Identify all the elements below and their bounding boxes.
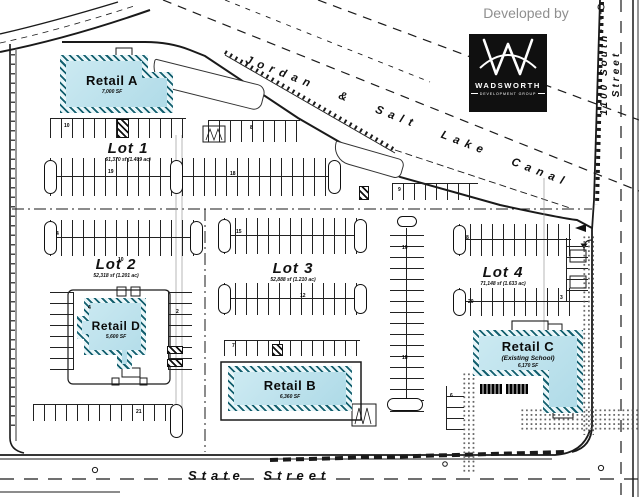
- lot-4-label: Lot 4 71,148 sf (1.633 ac): [443, 264, 563, 287]
- stall-count: 6: [450, 394, 453, 399]
- stall-count: 20: [468, 300, 474, 305]
- parking-row: [392, 183, 478, 200]
- parking-row: [459, 288, 571, 316]
- entrance-arrow-icon: [575, 224, 586, 232]
- landscape-island: [397, 216, 417, 227]
- landscape-island: [387, 398, 423, 411]
- landscape-island: [453, 225, 466, 255]
- retail-c-size: 6,170 SF: [518, 363, 538, 369]
- stall-count: 18: [402, 356, 408, 361]
- stall-count: 9: [398, 188, 401, 193]
- developed-by-text: Developed by: [452, 5, 600, 21]
- stall-count: 8: [250, 126, 253, 131]
- landscape-island: [354, 219, 367, 253]
- stall-count: 19: [108, 170, 114, 175]
- stall-count: 8: [466, 236, 469, 241]
- parking-row: [33, 404, 173, 421]
- lot-1-label: Lot 1 61,370 sf (1.409 ac): [68, 140, 188, 163]
- parking-row: [224, 340, 360, 356]
- stall-count: 2: [176, 310, 179, 315]
- crosswalk-marker: [506, 384, 528, 394]
- landscape-island: [44, 221, 57, 255]
- landscape-island: [170, 160, 183, 194]
- stall-count: 7: [232, 344, 235, 349]
- stall-count: 10: [118, 258, 124, 263]
- lot-3-name: Lot 3: [233, 260, 353, 277]
- stall-count: 10: [402, 246, 408, 251]
- retail-a-size: 7,000 SF: [102, 89, 122, 95]
- crosswalk-marker: [272, 344, 283, 356]
- building-label-retail-b: Retail B 6,360 SF: [230, 370, 350, 407]
- retail-b-size: 6,360 SF: [280, 394, 300, 400]
- lot-2-area: 52,318 sf (1.201 ac): [56, 273, 176, 279]
- parking-row: [50, 220, 196, 256]
- retail-d-size: 5,600 SF: [106, 334, 126, 340]
- lot-2-name: Lot 2: [56, 256, 176, 273]
- lot-3-area: 52,888 sf (1.210 ac): [233, 277, 353, 283]
- parking-row: [50, 158, 334, 196]
- stall-count: 4: [56, 232, 59, 237]
- stall-count: 10: [64, 124, 70, 129]
- wadsworth-logo-name: WADSWORTH: [475, 81, 541, 90]
- crosswalk-marker: [480, 384, 502, 394]
- lot-2-label: Lot 2 52,318 sf (1.201 ac): [56, 256, 176, 279]
- building-label-retail-d: Retail D 5,600 SF: [80, 312, 152, 346]
- stall-count: 15: [236, 230, 242, 235]
- retail-d-name: Retail D: [92, 319, 141, 333]
- parking-row: [224, 283, 360, 315]
- parking-row: [50, 292, 74, 370]
- lot-1-name: Lot 1: [68, 140, 188, 157]
- landscape-island: [170, 404, 183, 438]
- retail-c-note: (Existing School): [501, 355, 554, 362]
- crosswalk-marker: [167, 346, 183, 354]
- building-label-retail-a: Retail A 7,000 SF: [62, 63, 162, 105]
- crosswalk-marker: [117, 119, 129, 138]
- stall-count: 12: [300, 294, 306, 299]
- landscape-island: [218, 219, 231, 253]
- parking-row: [390, 228, 424, 412]
- landscape-island: [44, 160, 57, 194]
- retail-c-name: Retail C: [502, 339, 554, 354]
- east-street-line2: Street: [611, 9, 623, 139]
- lot-1-area: 61,370 sf (1.409 ac): [68, 157, 188, 163]
- east-street-line1: 1100 South: [599, 9, 611, 139]
- retail-b-name: Retail B: [264, 378, 316, 393]
- wadsworth-monogram-icon: [476, 34, 540, 80]
- landscape-stipple: [582, 235, 594, 435]
- site-plan: Retail A 7,000 SF Retail D 5,600 SF Reta…: [0, 0, 639, 497]
- building-label-retail-c: Retail C (Existing School) 6,170 SF: [475, 334, 581, 374]
- landscape-island: [218, 284, 231, 314]
- stall-count: 3: [560, 296, 563, 301]
- east-street-label: 1100 South Street: [599, 9, 625, 139]
- landscape-island: [453, 289, 466, 316]
- parking-row: [224, 218, 360, 254]
- stall-count: 21: [136, 410, 142, 415]
- wadsworth-logo: WADSWORTH DEVELOPMENT GROUP: [469, 34, 547, 112]
- landscape-island: [328, 160, 341, 194]
- parking-row: [459, 224, 571, 256]
- stall-count: 18: [230, 172, 236, 177]
- wadsworth-logo-subtitle: DEVELOPMENT GROUP: [471, 92, 546, 96]
- lot-4-area: 71,148 sf (1.633 ac): [443, 281, 563, 287]
- retail-a-name: Retail A: [86, 73, 138, 88]
- parking-row: [208, 120, 300, 142]
- lot-4-name: Lot 4: [443, 264, 563, 281]
- crosswalk-marker: [359, 186, 369, 200]
- crosswalk-marker: [167, 359, 183, 367]
- landscape-island: [190, 221, 203, 255]
- stall-count: 4: [88, 306, 91, 311]
- state-street-label: State Street: [188, 468, 330, 483]
- landscape-island: [354, 284, 367, 314]
- lot-3-label: Lot 3 52,888 sf (1.210 ac): [233, 260, 353, 283]
- landscape-stipple: [462, 372, 476, 472]
